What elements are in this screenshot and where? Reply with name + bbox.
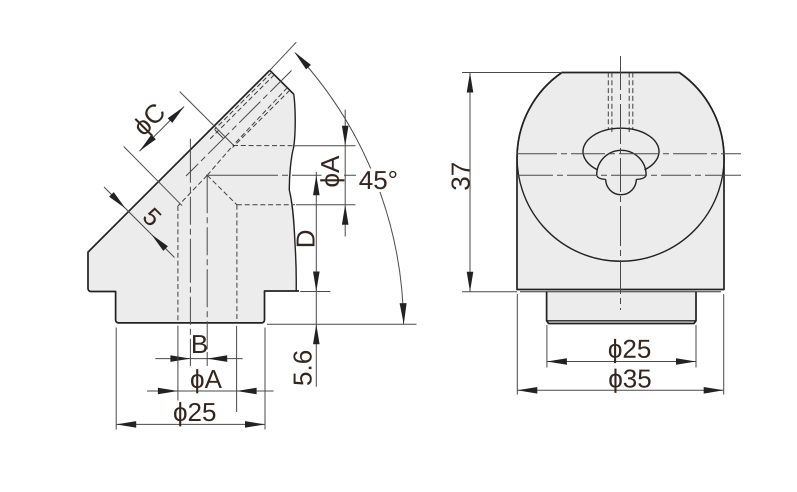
svg-text:ϕC: ϕC [126, 97, 171, 142]
svg-text:ϕ25: ϕ25 [173, 397, 217, 427]
svg-text:ϕ35: ϕ35 [608, 363, 652, 393]
svg-text:5.6: 5.6 [288, 350, 318, 386]
svg-text:ϕA: ϕA [190, 364, 223, 394]
svg-text:45°: 45° [359, 165, 398, 195]
svg-text:37: 37 [445, 162, 475, 191]
svg-text:B: B [191, 329, 208, 359]
svg-text:ϕA: ϕA [315, 155, 345, 188]
svg-text:D: D [291, 230, 321, 249]
svg-text:ϕ25: ϕ25 [608, 334, 652, 364]
